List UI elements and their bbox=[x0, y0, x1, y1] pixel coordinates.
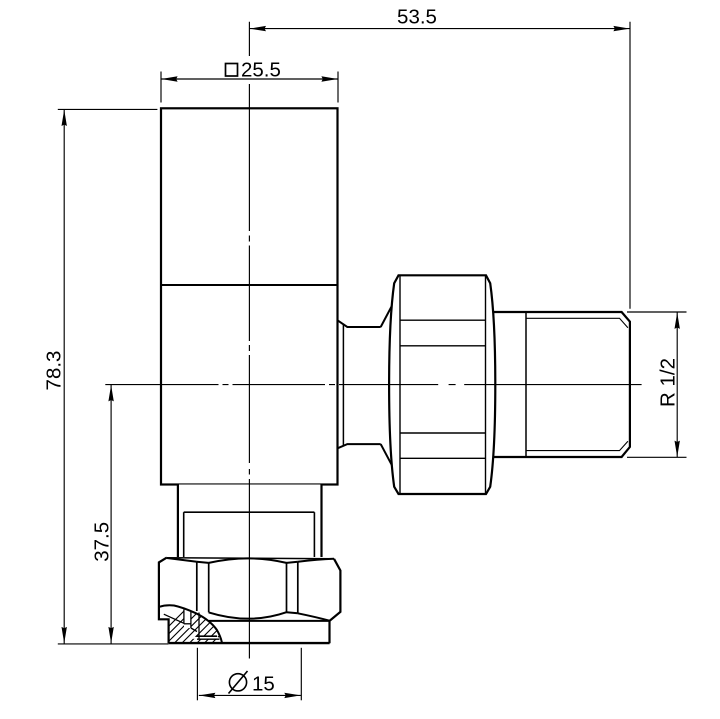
svg-text:78.3: 78.3 bbox=[42, 351, 65, 391]
svg-text:37.5: 37.5 bbox=[91, 522, 114, 562]
svg-text:53.5: 53.5 bbox=[397, 6, 437, 29]
svg-text:R 1/2: R 1/2 bbox=[657, 358, 680, 407]
svg-text:25.5: 25.5 bbox=[241, 59, 281, 82]
svg-text:15: 15 bbox=[252, 673, 275, 696]
